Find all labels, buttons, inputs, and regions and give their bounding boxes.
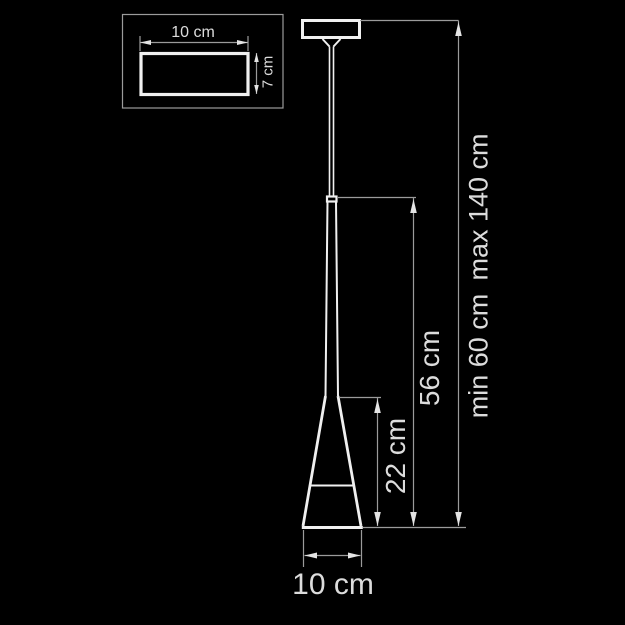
arrow-left-icon xyxy=(305,553,318,559)
lamp-stem xyxy=(326,202,339,397)
diameter-extension-lines xyxy=(304,530,362,567)
arrow-up-icon xyxy=(455,22,462,36)
suspension-min-label: min 60 cm xyxy=(466,294,493,419)
fixture-height-label: 56 cm xyxy=(416,330,444,406)
stem-collar xyxy=(327,197,337,202)
shade-cone xyxy=(303,396,361,526)
arrow-up-icon xyxy=(410,199,417,213)
suspension-wire xyxy=(330,47,334,197)
arrow-left-icon xyxy=(140,40,151,45)
arrow-down-icon xyxy=(254,85,259,94)
inset-width-label: 10 cm xyxy=(171,25,215,41)
inset-height-label: 7 cm xyxy=(261,56,276,89)
arrow-down-icon xyxy=(410,512,417,526)
shade-diameter-label: 10 cm xyxy=(292,570,374,600)
arrow-down-icon xyxy=(374,512,381,526)
mount-funnel xyxy=(323,39,341,47)
arrow-up-icon xyxy=(374,399,381,413)
arrow-up-icon xyxy=(254,53,259,62)
arrow-down-icon xyxy=(455,512,462,526)
arrow-right-icon xyxy=(237,40,248,45)
dimension-drawing: 10 cm 7 cm 22 cm 56 cm min 60 cm max 140… xyxy=(0,0,625,625)
suspension-max-label: max 140 cm xyxy=(466,133,493,280)
pendant-lamp xyxy=(302,21,363,528)
arrow-right-icon xyxy=(348,553,361,559)
line-art xyxy=(0,0,625,625)
canopy-top-view xyxy=(141,54,248,95)
ceiling-mount xyxy=(303,21,360,38)
shade-height-label: 22 cm xyxy=(382,418,410,494)
